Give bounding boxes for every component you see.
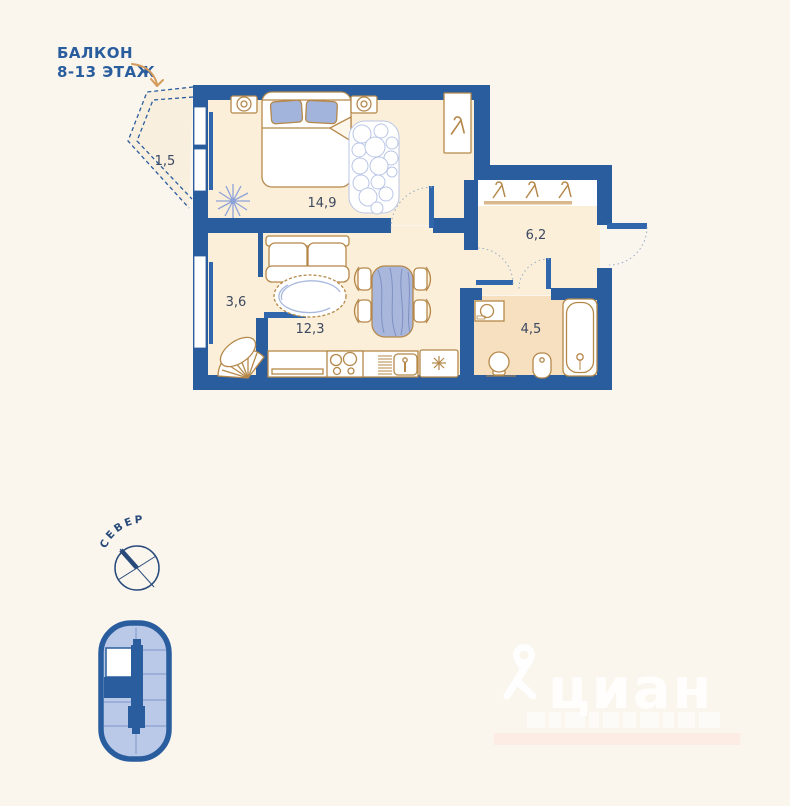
nook-partition-wall <box>256 318 268 378</box>
dish-rack <box>378 356 392 374</box>
bathroom-door-leaf <box>546 258 551 289</box>
floorplan-screenshot: 1,5 14,9 3,6 12,3 6,2 4,5 БАЛКОН 8-13 ЭТ… <box>0 0 790 806</box>
compass-icon: СЕВЕР <box>98 514 159 590</box>
nook-screen-partition <box>258 233 263 277</box>
hallway-area-label: 6,2 <box>526 228 547 243</box>
watermark: циан <box>494 644 740 745</box>
building-position-icon <box>101 623 169 759</box>
bathtub <box>563 299 597 376</box>
bedroom-area-label: 14,9 <box>308 196 337 211</box>
double-bed <box>262 92 351 187</box>
compass-label: СЕВЕР <box>98 514 146 551</box>
snowflake-icon <box>432 356 446 370</box>
compass-needle <box>121 550 137 568</box>
floorplan-image: 1,5 14,9 3,6 12,3 6,2 4,5 БАЛКОН 8-13 ЭТ… <box>0 0 790 802</box>
balcony-window <box>194 107 206 145</box>
nightstand-left <box>231 96 257 113</box>
kitchen-counter <box>268 350 458 377</box>
highlighted-unit <box>106 648 132 677</box>
counter-bar <box>272 369 323 374</box>
toilet <box>533 353 551 378</box>
bedroom-rug <box>349 121 399 214</box>
nook-area-label: 3,6 <box>226 295 247 310</box>
balcony-floor <box>128 87 193 208</box>
bathroom-area-label: 4,5 <box>521 322 542 337</box>
living-window <box>194 256 206 348</box>
balcony-note-line1: БАЛКОН <box>57 44 133 62</box>
living-hall-door-leaf <box>476 280 513 285</box>
round-rug <box>274 275 346 317</box>
entrance-door-swing <box>609 227 647 265</box>
entrance-door-leaf <box>607 223 647 229</box>
living-area-label: 12,3 <box>296 322 325 337</box>
balcony-annotation: БАЛКОН 8-13 ЭТАЖ <box>57 44 163 86</box>
fridge <box>420 350 458 377</box>
balcony-area-label: 1,5 <box>155 154 176 169</box>
bedroom-door-leaf <box>429 186 434 228</box>
washing-machine <box>475 301 504 321</box>
closet-shelf <box>484 201 572 205</box>
watermark-band <box>494 733 740 745</box>
kitchen-sink <box>394 354 417 375</box>
balcony-door-window <box>194 149 206 191</box>
living-radiator <box>209 262 213 344</box>
watermark-subtext-blurred <box>527 712 720 728</box>
bedroom-radiator <box>209 112 213 190</box>
cooktop <box>327 351 363 377</box>
nightstand-right <box>351 96 377 113</box>
watermark-logo-icon <box>507 644 535 696</box>
wardrobe <box>444 93 471 153</box>
